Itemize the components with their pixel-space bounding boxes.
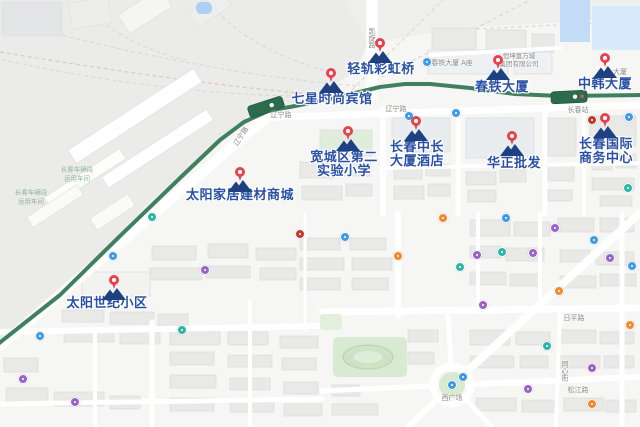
poi-pin-zhonghan-mansion[interactable] bbox=[592, 53, 618, 79]
rail-yard-label: 运用车间 bbox=[64, 176, 90, 183]
poi-dot[interactable] bbox=[478, 300, 488, 310]
poi-dot[interactable] bbox=[501, 213, 511, 223]
poi-pin-chuntie-mansion[interactable] bbox=[485, 55, 511, 81]
poi-dot[interactable] bbox=[587, 363, 597, 373]
poi-dot[interactable] bbox=[451, 108, 461, 118]
poi-dot[interactable] bbox=[624, 112, 634, 122]
poi-dot[interactable] bbox=[393, 251, 403, 261]
map-canvas[interactable]: 轻轨彩虹桥春铁大厦中韩大厦七星时尚宾馆宽城区第二实验小学长春中长大厦酒店华正批发… bbox=[0, 0, 640, 427]
poi-label-line: 七星时尚宾馆 bbox=[291, 92, 372, 106]
poi-dot[interactable] bbox=[340, 232, 350, 242]
poi-mountain-icon bbox=[368, 51, 392, 63]
poi-dot[interactable] bbox=[550, 223, 560, 233]
poi-label-line: 大厦酒店 bbox=[390, 154, 444, 168]
light-rail-station[interactable] bbox=[551, 90, 588, 104]
poi-pin-dot-icon bbox=[343, 126, 353, 136]
poi-mountain-icon bbox=[102, 288, 126, 300]
rail-yard-label: 长春车辆段 bbox=[61, 167, 94, 174]
map-small-label: 同心街 bbox=[560, 361, 568, 382]
rail-yard-label: 长春车辆段 bbox=[15, 190, 48, 197]
poi-pin-huazheng-wholesale[interactable] bbox=[499, 131, 525, 157]
poi-label-zhonghan-mansion[interactable]: 中韩大厦 bbox=[578, 77, 632, 91]
poi-pin-dot-icon bbox=[600, 53, 610, 63]
poi-label-changchun-international-business-center[interactable]: 长春国际商务中心 bbox=[579, 137, 633, 165]
poi-label-line: 长春中长 bbox=[390, 140, 444, 154]
poi-dot[interactable] bbox=[542, 341, 552, 351]
poi-dot[interactable] bbox=[147, 212, 157, 222]
map-small-label: 辽宁路 bbox=[386, 106, 407, 114]
poi-label-line: 实验小学 bbox=[310, 164, 378, 178]
poi-dot[interactable] bbox=[589, 235, 599, 245]
poi-label-huazheng-wholesale[interactable]: 华正批发 bbox=[487, 156, 541, 170]
map-small-label: 辽宁路 bbox=[271, 112, 292, 120]
poi-mountain-icon bbox=[486, 68, 510, 80]
map-small-label: 日平路 bbox=[564, 315, 585, 323]
poi-label-changchun-zhongchang-mansion-hotel[interactable]: 长春中长大厦酒店 bbox=[390, 140, 444, 168]
poi-label-line: 春铁大厦 bbox=[475, 80, 529, 94]
poi-dot[interactable] bbox=[438, 213, 448, 223]
poi-dot[interactable] bbox=[70, 397, 80, 407]
poi-dot[interactable] bbox=[587, 399, 597, 409]
poi-label-light-rail-rainbow-bridge[interactable]: 轻轨彩虹桥 bbox=[347, 62, 415, 76]
poi-mountain-icon bbox=[593, 66, 617, 78]
poi-dot[interactable] bbox=[422, 57, 432, 67]
poi-mountain-icon bbox=[336, 139, 360, 151]
poi-dot[interactable] bbox=[108, 251, 118, 261]
poi-label-line: 商务中心 bbox=[579, 151, 633, 165]
poi-pin-kuancheng-no2-experimental-primary-school[interactable] bbox=[335, 126, 361, 152]
poi-pin-light-rail-rainbow-bridge[interactable] bbox=[367, 38, 393, 64]
poi-pin-changchun-international-business-center[interactable] bbox=[592, 113, 618, 139]
poi-pin-dot-icon bbox=[493, 55, 503, 65]
poi-label-seven-star-fashion-hotel[interactable]: 七星时尚宾馆 bbox=[291, 92, 372, 106]
poi-dot[interactable] bbox=[627, 261, 637, 271]
poi-dot[interactable] bbox=[497, 247, 507, 257]
poi-pin-taiyang-century-community[interactable] bbox=[101, 275, 127, 301]
poi-pin-dot-icon bbox=[411, 116, 421, 126]
poi-mountain-icon bbox=[500, 144, 524, 156]
poi-dot[interactable] bbox=[455, 262, 465, 272]
poi-mountain-icon bbox=[319, 81, 343, 93]
map-small-label: 春铁大厦 A座 bbox=[431, 60, 473, 68]
rail-yard-label: 运用车间 bbox=[18, 199, 44, 206]
poi-label-line: 长春国际 bbox=[579, 137, 633, 151]
poi-label-line: 中韩大厦 bbox=[578, 77, 632, 91]
poi-label-kuancheng-no2-experimental-primary-school[interactable]: 宽城区第二实验小学 bbox=[310, 150, 378, 178]
poi-dot[interactable] bbox=[18, 374, 28, 384]
poi-pin-dot-icon bbox=[600, 113, 610, 123]
poi-dot[interactable] bbox=[625, 320, 635, 330]
poi-mountain-icon bbox=[593, 126, 617, 138]
map-small-label: 西广场 bbox=[442, 395, 463, 403]
poi-dot[interactable] bbox=[35, 331, 45, 341]
poi-label-line: 宽城区第二 bbox=[310, 150, 378, 164]
poi-dot[interactable] bbox=[177, 325, 187, 335]
poi-pin-changchun-zhongchang-mansion-hotel[interactable] bbox=[403, 116, 429, 142]
poi-pin-dot-icon bbox=[235, 167, 245, 177]
poi-pin-dot-icon bbox=[109, 275, 119, 285]
poi-dot[interactable] bbox=[554, 286, 564, 296]
poi-dot[interactable] bbox=[447, 380, 457, 390]
poi-dot[interactable] bbox=[623, 183, 633, 193]
poi-pin-taiyang-home-building-materials-mall[interactable] bbox=[227, 167, 253, 193]
poi-pin-dot-icon bbox=[326, 68, 336, 78]
poi-mountain-icon bbox=[228, 180, 252, 192]
poi-pin-seven-star-fashion-hotel[interactable] bbox=[318, 68, 344, 94]
poi-label-line: 华正批发 bbox=[487, 156, 541, 170]
map-small-label: 松江路 bbox=[568, 387, 589, 395]
poi-pin-dot-icon bbox=[375, 38, 385, 48]
poi-dot[interactable] bbox=[472, 250, 482, 260]
poi-dot[interactable] bbox=[605, 253, 615, 263]
poi-dot[interactable] bbox=[295, 229, 305, 239]
poi-dot[interactable] bbox=[458, 372, 468, 382]
map-background bbox=[0, 0, 640, 427]
poi-label-chuntie-mansion[interactable]: 春铁大厦 bbox=[475, 80, 529, 94]
poi-dot[interactable] bbox=[200, 265, 210, 275]
map-small-label: 长春站 bbox=[568, 107, 589, 115]
poi-label-line: 轻轨彩虹桥 bbox=[347, 62, 415, 76]
poi-mountain-icon bbox=[404, 129, 428, 141]
poi-pin-dot-icon bbox=[507, 131, 517, 141]
poi-dot[interactable] bbox=[528, 248, 538, 258]
poi-dot[interactable] bbox=[523, 384, 533, 394]
